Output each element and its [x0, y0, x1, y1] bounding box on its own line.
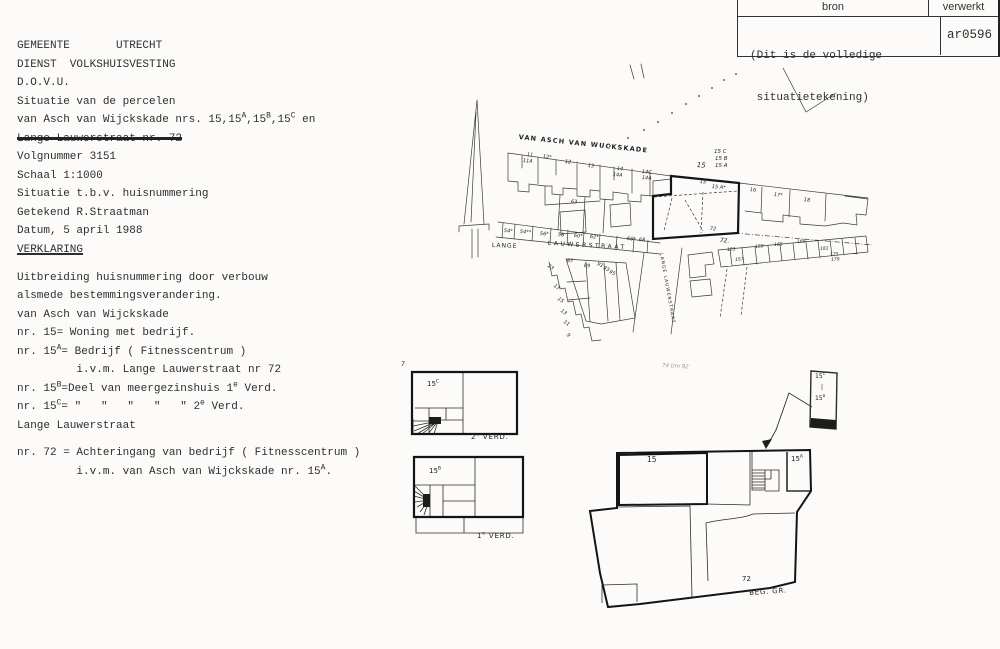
map-label: 54*	[504, 229, 513, 235]
map-label: 9	[565, 333, 570, 339]
plan-label-15: 15	[647, 456, 657, 464]
map-label: 15 B	[715, 157, 728, 163]
street-label-lange: LANGE	[492, 243, 518, 250]
street-label-lauwerstraat: LAUWERSTRAAT	[548, 241, 627, 251]
map-label: 15 C	[714, 150, 727, 156]
map-label: 18	[803, 198, 810, 204]
map-label: 87	[567, 259, 574, 264]
map-label: 56*	[540, 232, 549, 238]
map-label: 62*	[590, 235, 599, 241]
map-label: 60*	[574, 234, 583, 240]
street-label-lange-lauwerstraat-vertical: LANGE LAUWERSTRAAT	[658, 253, 675, 324]
floor-label-1e-verd: 1e VERD.	[477, 533, 515, 540]
map-label: 12*	[543, 155, 552, 161]
street-label-van-asch-van-wijckskade: VAN ASCH VAN WUCKSKADE	[518, 134, 648, 154]
map-label: 74 t/m 92	[662, 364, 689, 371]
map-label: 15	[700, 180, 707, 186]
map-label: 153	[727, 248, 736, 253]
map-label: 14A	[642, 176, 652, 182]
map-label: 58	[558, 233, 565, 238]
floor-label-2e-verd: 2e VERD.	[471, 434, 509, 441]
map-label: 17	[552, 284, 560, 292]
map-label: 181	[820, 247, 829, 252]
map-label: 89	[584, 264, 591, 269]
map-label: 13	[559, 309, 567, 317]
map-label: 169	[797, 240, 806, 245]
legend-label-15b: 15B	[815, 396, 825, 402]
map-label: 68	[639, 238, 646, 243]
map-label: 11A	[523, 159, 533, 165]
map-label: 157	[735, 258, 744, 263]
map-label: 12	[565, 160, 572, 166]
legend-label-15c: 15C	[815, 374, 825, 380]
map-label: 95	[608, 270, 616, 277]
scanned-situation-drawing: GEMEENTE UTRECHTDIENST VOLKSHUISVESTINGD…	[0, 0, 1000, 649]
map-label: 15 A*	[712, 185, 726, 191]
map-label: 54**	[520, 230, 532, 236]
map-label: 15	[556, 297, 564, 305]
drawing-labels: VAN ASCH VAN WUCKSKADELANGELAUWERSTRAATL…	[0, 0, 1000, 649]
map-label: 15	[696, 162, 705, 170]
map-label: |	[821, 385, 823, 391]
plan-label-72: 72	[742, 576, 751, 583]
map-label: 14A	[613, 173, 623, 179]
plan-label-15b: 15B	[429, 468, 441, 475]
plan-label-15c: 15C	[427, 381, 439, 388]
map-label: 23	[546, 264, 554, 272]
map-label: 15 A	[715, 164, 728, 170]
map-label: 72	[710, 227, 717, 232]
map-label: 63	[571, 200, 578, 205]
map-label: 11	[562, 320, 570, 328]
map-label: 159	[755, 245, 764, 250]
plan-label-15a: 15A	[791, 456, 803, 463]
map-label: 13	[588, 164, 595, 170]
map-label: 72.	[720, 238, 730, 245]
map-label: 179	[831, 258, 840, 263]
map-label: 16	[749, 188, 756, 194]
map-label: 17*	[773, 193, 782, 199]
floor-label-beg-gr: BEG. GR.	[749, 587, 787, 597]
map-label: 165	[774, 243, 783, 248]
map-label: 66*	[627, 237, 636, 243]
map-label: 7	[401, 362, 405, 368]
